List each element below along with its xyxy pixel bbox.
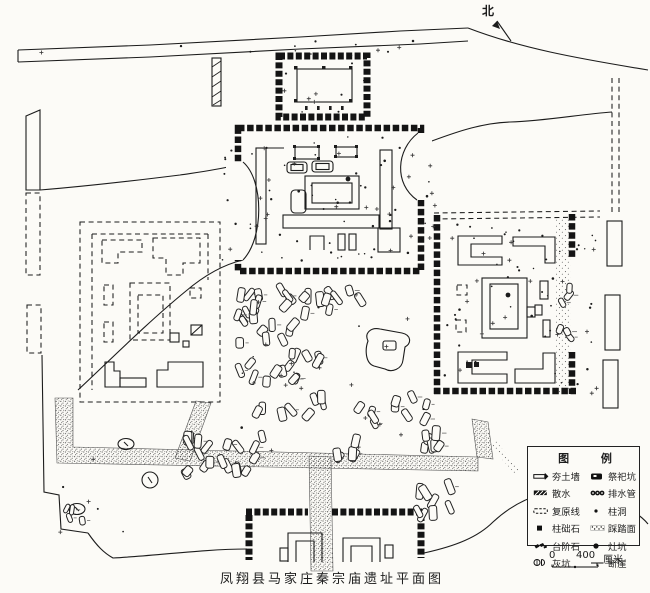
rammed-earth-wall-icon [533, 472, 551, 481]
legend-title: 图 例 [533, 450, 637, 466]
north-label: 北 [482, 2, 494, 19]
post-hole-icon [590, 507, 607, 515]
north-enclosure [279, 56, 367, 117]
east-enclosure [434, 211, 600, 394]
trampled-surface-icon [590, 524, 607, 532]
map-title: 凤翔县马家庄秦宗庙遗址平面图 [7, 568, 650, 587]
central-temple-building [256, 147, 400, 252]
restoration-line-icon [533, 507, 551, 515]
north-enclosure-building [297, 69, 352, 102]
column-base-stone-icon [533, 524, 551, 532]
central-enclosure [226, 128, 432, 271]
drain-pipe-icon [590, 489, 607, 497]
sacrificial-pit-icon [590, 472, 607, 481]
legend: 图 例 夯土墙 祭祀坑 散水 排水管 复原线 柱洞 [527, 446, 640, 546]
west-enclosure-outline [80, 222, 220, 402]
north-enclosure-wall [279, 56, 367, 117]
south-gate [246, 512, 424, 562]
north-arrow [492, 21, 511, 41]
large-pit [69, 329, 410, 515]
west-enclosure [80, 222, 220, 402]
apron-drainage-icon [533, 489, 551, 497]
east-enclosure-buildings [458, 236, 555, 383]
site-plan: 北 图 例 夯土墙 祭祀坑 散水 排水管 复原线 柱洞 [0, 0, 650, 593]
